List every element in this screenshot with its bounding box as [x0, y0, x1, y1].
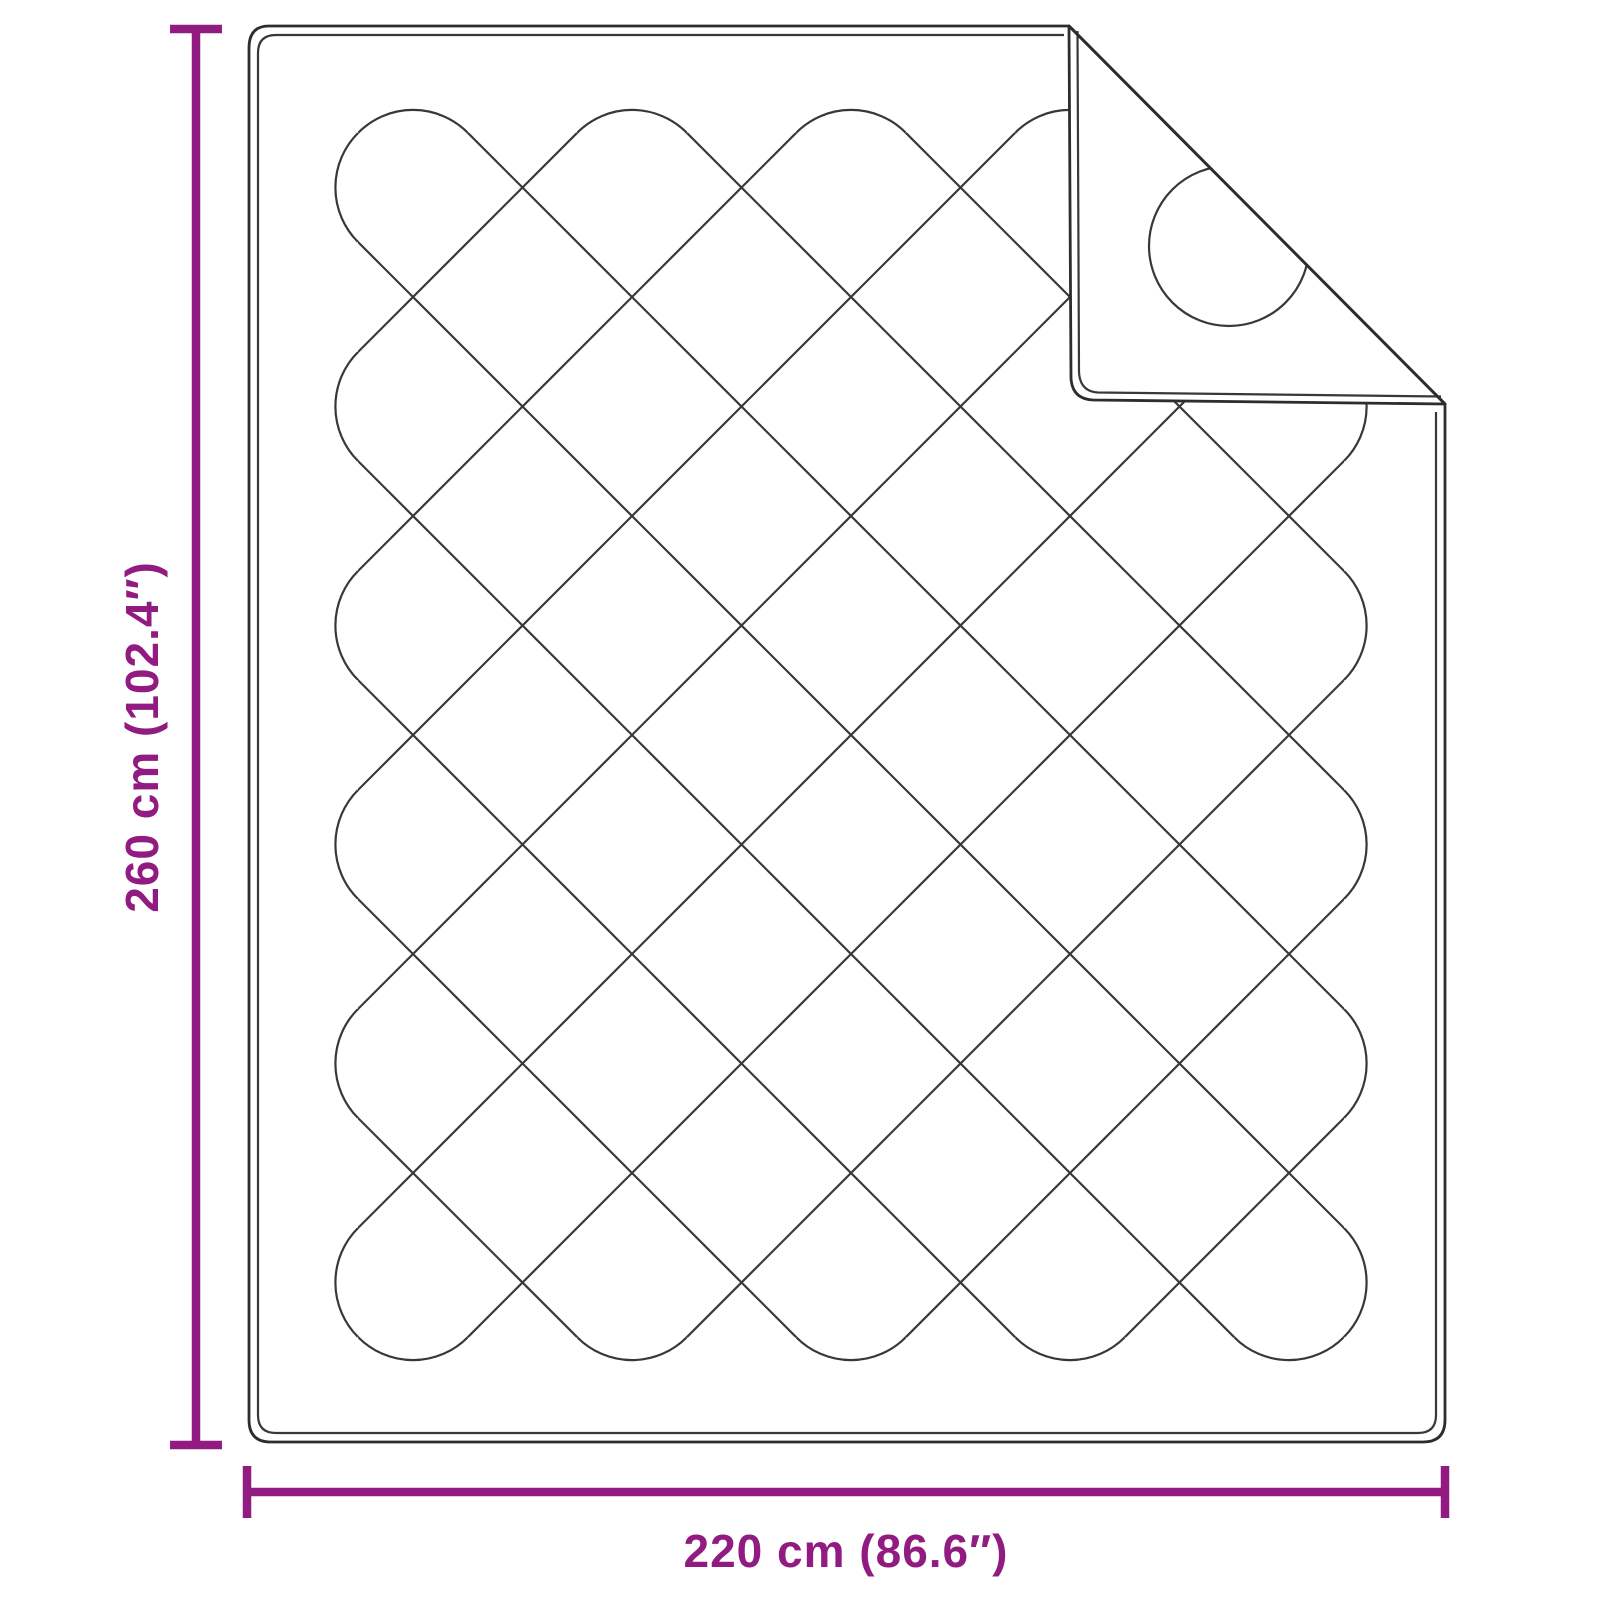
width-dimension: 220 cm (86.6″): [247, 1466, 1445, 1577]
folded-corner-flap: [1069, 26, 1445, 404]
diagram-canvas: 260 cm (102.4″) 220 cm (86.6″): [0, 0, 1600, 1600]
height-dimension: 260 cm (102.4″): [116, 29, 222, 1445]
height-dimension-label: 260 cm (102.4″): [116, 561, 168, 913]
width-dimension-label: 220 cm (86.6″): [684, 1525, 1009, 1577]
blanket-dimension-diagram: 260 cm (102.4″) 220 cm (86.6″): [0, 0, 1600, 1600]
